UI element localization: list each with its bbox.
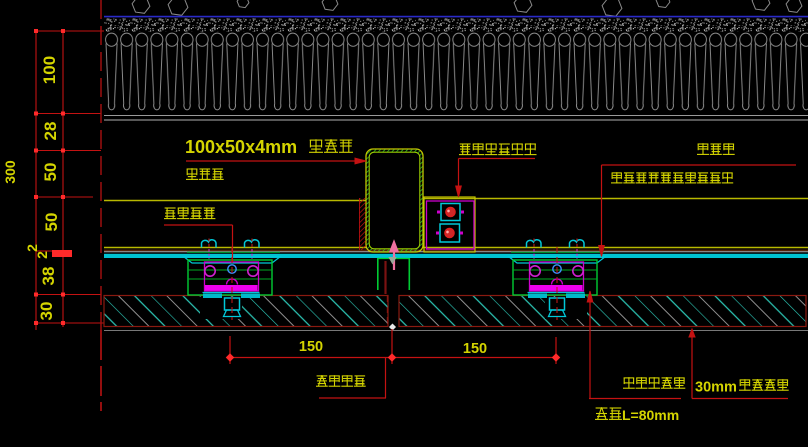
svg-text:50: 50	[41, 163, 60, 182]
svg-text:30: 30	[37, 302, 56, 321]
svg-text:L=80mm: L=80mm	[622, 407, 679, 423]
svg-text:28: 28	[41, 122, 60, 141]
svg-text:100x50x4mm: 100x50x4mm	[185, 137, 297, 157]
svg-text:100: 100	[40, 56, 59, 84]
svg-text:38: 38	[39, 267, 58, 286]
svg-text:2: 2	[34, 251, 50, 259]
svg-text:150: 150	[463, 341, 487, 357]
svg-text:50: 50	[42, 213, 61, 232]
svg-text:2: 2	[24, 244, 40, 252]
svg-text:300: 300	[2, 160, 18, 184]
svg-text:150: 150	[299, 339, 323, 355]
svg-text:30mm: 30mm	[695, 380, 737, 396]
